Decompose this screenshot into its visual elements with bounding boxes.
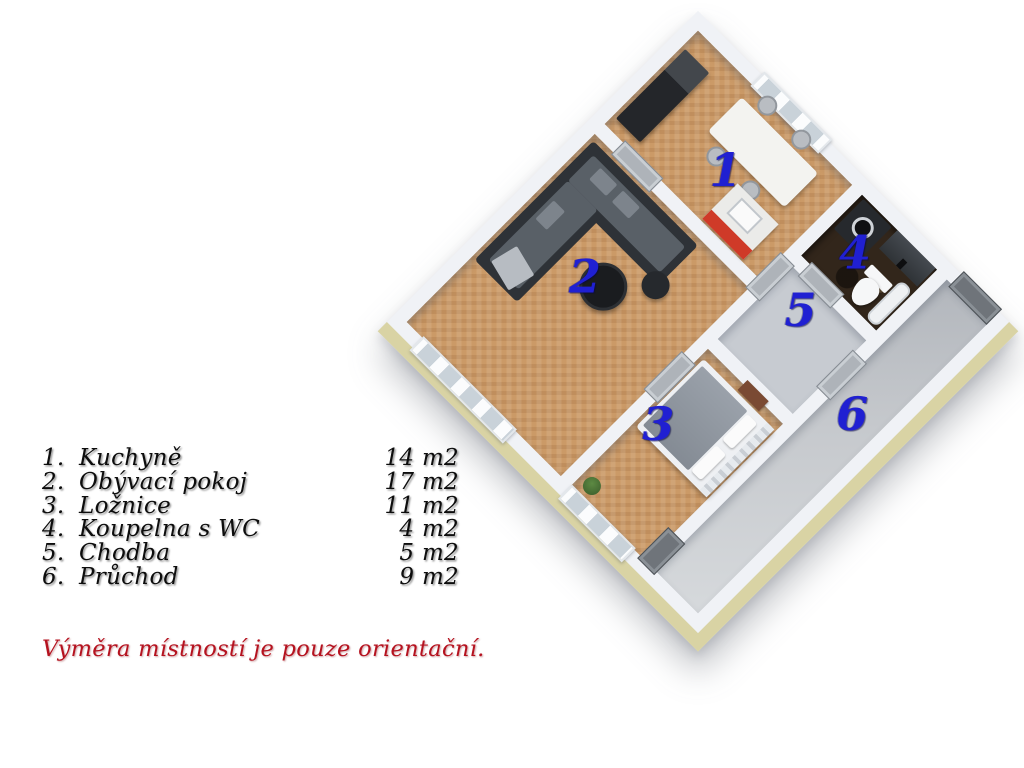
room-label-bedroom: 3 — [634, 393, 682, 455]
legend-room-name: Chodba — [79, 542, 371, 566]
legend-room-name: Obývací pokoj — [79, 471, 371, 495]
room-label-hallway: 5 — [777, 279, 825, 341]
room-label-living: 2 — [561, 246, 609, 308]
legend-room-name: Průchod — [79, 566, 371, 590]
legend-room-area: 17 m2 — [371, 471, 459, 495]
legend-row: 6. Průchod 9 m2 — [42, 566, 459, 590]
legend-room-area: 9 m2 — [371, 566, 459, 590]
legend-room-name: Kuchyně — [79, 447, 371, 471]
room-label-kitchen: 1 — [702, 139, 750, 201]
legend-row: 2. Obývací pokoj 17 m2 — [42, 471, 459, 495]
floor-plan-page: 1 2 3 4 5 6 1. Kuchyně 14 m2 2. Obývací … — [0, 0, 1024, 768]
legend-room-number: 6. — [42, 566, 79, 590]
legend-room-name: Koupelna s WC — [79, 518, 371, 542]
room-label-bathroom: 4 — [831, 222, 879, 284]
legend-room-number: 2. — [42, 471, 79, 495]
legend-room-number: 1. — [42, 447, 79, 471]
legend-room-name: Ložnice — [79, 495, 371, 519]
legend-room-number: 4. — [42, 518, 79, 542]
legend-room-area: 5 m2 — [371, 542, 459, 566]
legend-room-area: 4 m2 — [371, 518, 459, 542]
legend-room-area: 11 m2 — [371, 495, 459, 519]
legend-row: 4. Koupelna s WC 4 m2 — [42, 518, 459, 542]
room-label-passage: 6 — [828, 383, 876, 445]
legend-row: 1. Kuchyně 14 m2 — [42, 447, 459, 471]
legend-row: 5. Chodba 5 m2 — [42, 542, 459, 566]
kitchen-sink — [726, 198, 763, 235]
floor-plan-3d: 1 2 3 4 5 6 — [378, 11, 1019, 652]
disclaimer-text: Výměra místností je pouze orientační. — [42, 636, 485, 662]
room-legend: 1. Kuchyně 14 m2 2. Obývací pokoj 17 m2 … — [42, 447, 459, 590]
legend-room-number: 5. — [42, 542, 79, 566]
legend-room-number: 3. — [42, 495, 79, 519]
legend-row: 3. Ložnice 11 m2 — [42, 495, 459, 519]
legend-room-area: 14 m2 — [371, 447, 459, 471]
